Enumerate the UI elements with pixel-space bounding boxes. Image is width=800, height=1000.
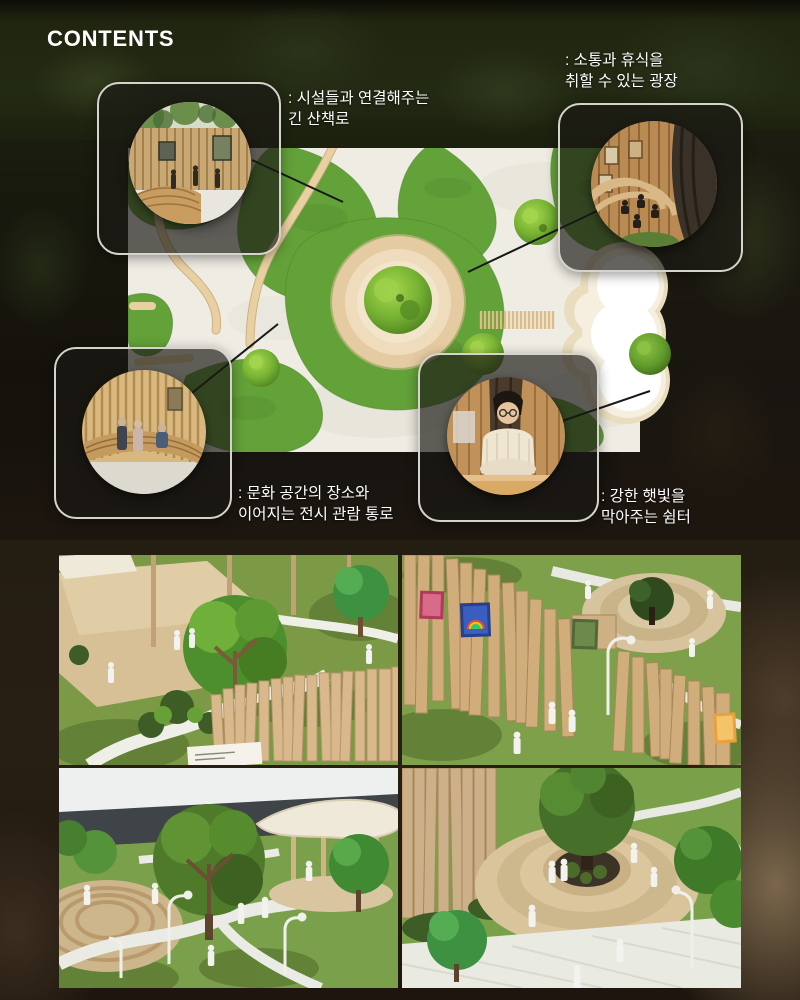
callout-photo-exhibit-corridor bbox=[82, 370, 206, 494]
callout-label-plaza: : 소통과 휴식을 취할 수 있는 광장 bbox=[565, 50, 678, 93]
model-photo-walkway bbox=[59, 555, 398, 765]
callout-photo-walkway bbox=[129, 102, 251, 224]
callout-label-walkway: : 시설들과 연결해주는 긴 산책로 bbox=[288, 88, 429, 131]
callout-label-sun-shelter: : 강한 햇빛을 막아주는 쉼터 bbox=[601, 486, 691, 529]
page-title: CONTENTS bbox=[47, 26, 174, 52]
callout-photo-plaza bbox=[591, 121, 717, 247]
model-photo-gallery-fence bbox=[402, 555, 741, 765]
callout-label-exhibit-corridor: : 문화 공간의 장소와 이어지는 전시 관람 통로 bbox=[238, 483, 394, 526]
model-photo-pavilion bbox=[59, 768, 398, 988]
model-photo-tree-mound bbox=[402, 768, 741, 988]
presentation-page: CONTENTS bbox=[0, 0, 800, 1000]
callout-photo-sun-shelter bbox=[447, 377, 565, 495]
